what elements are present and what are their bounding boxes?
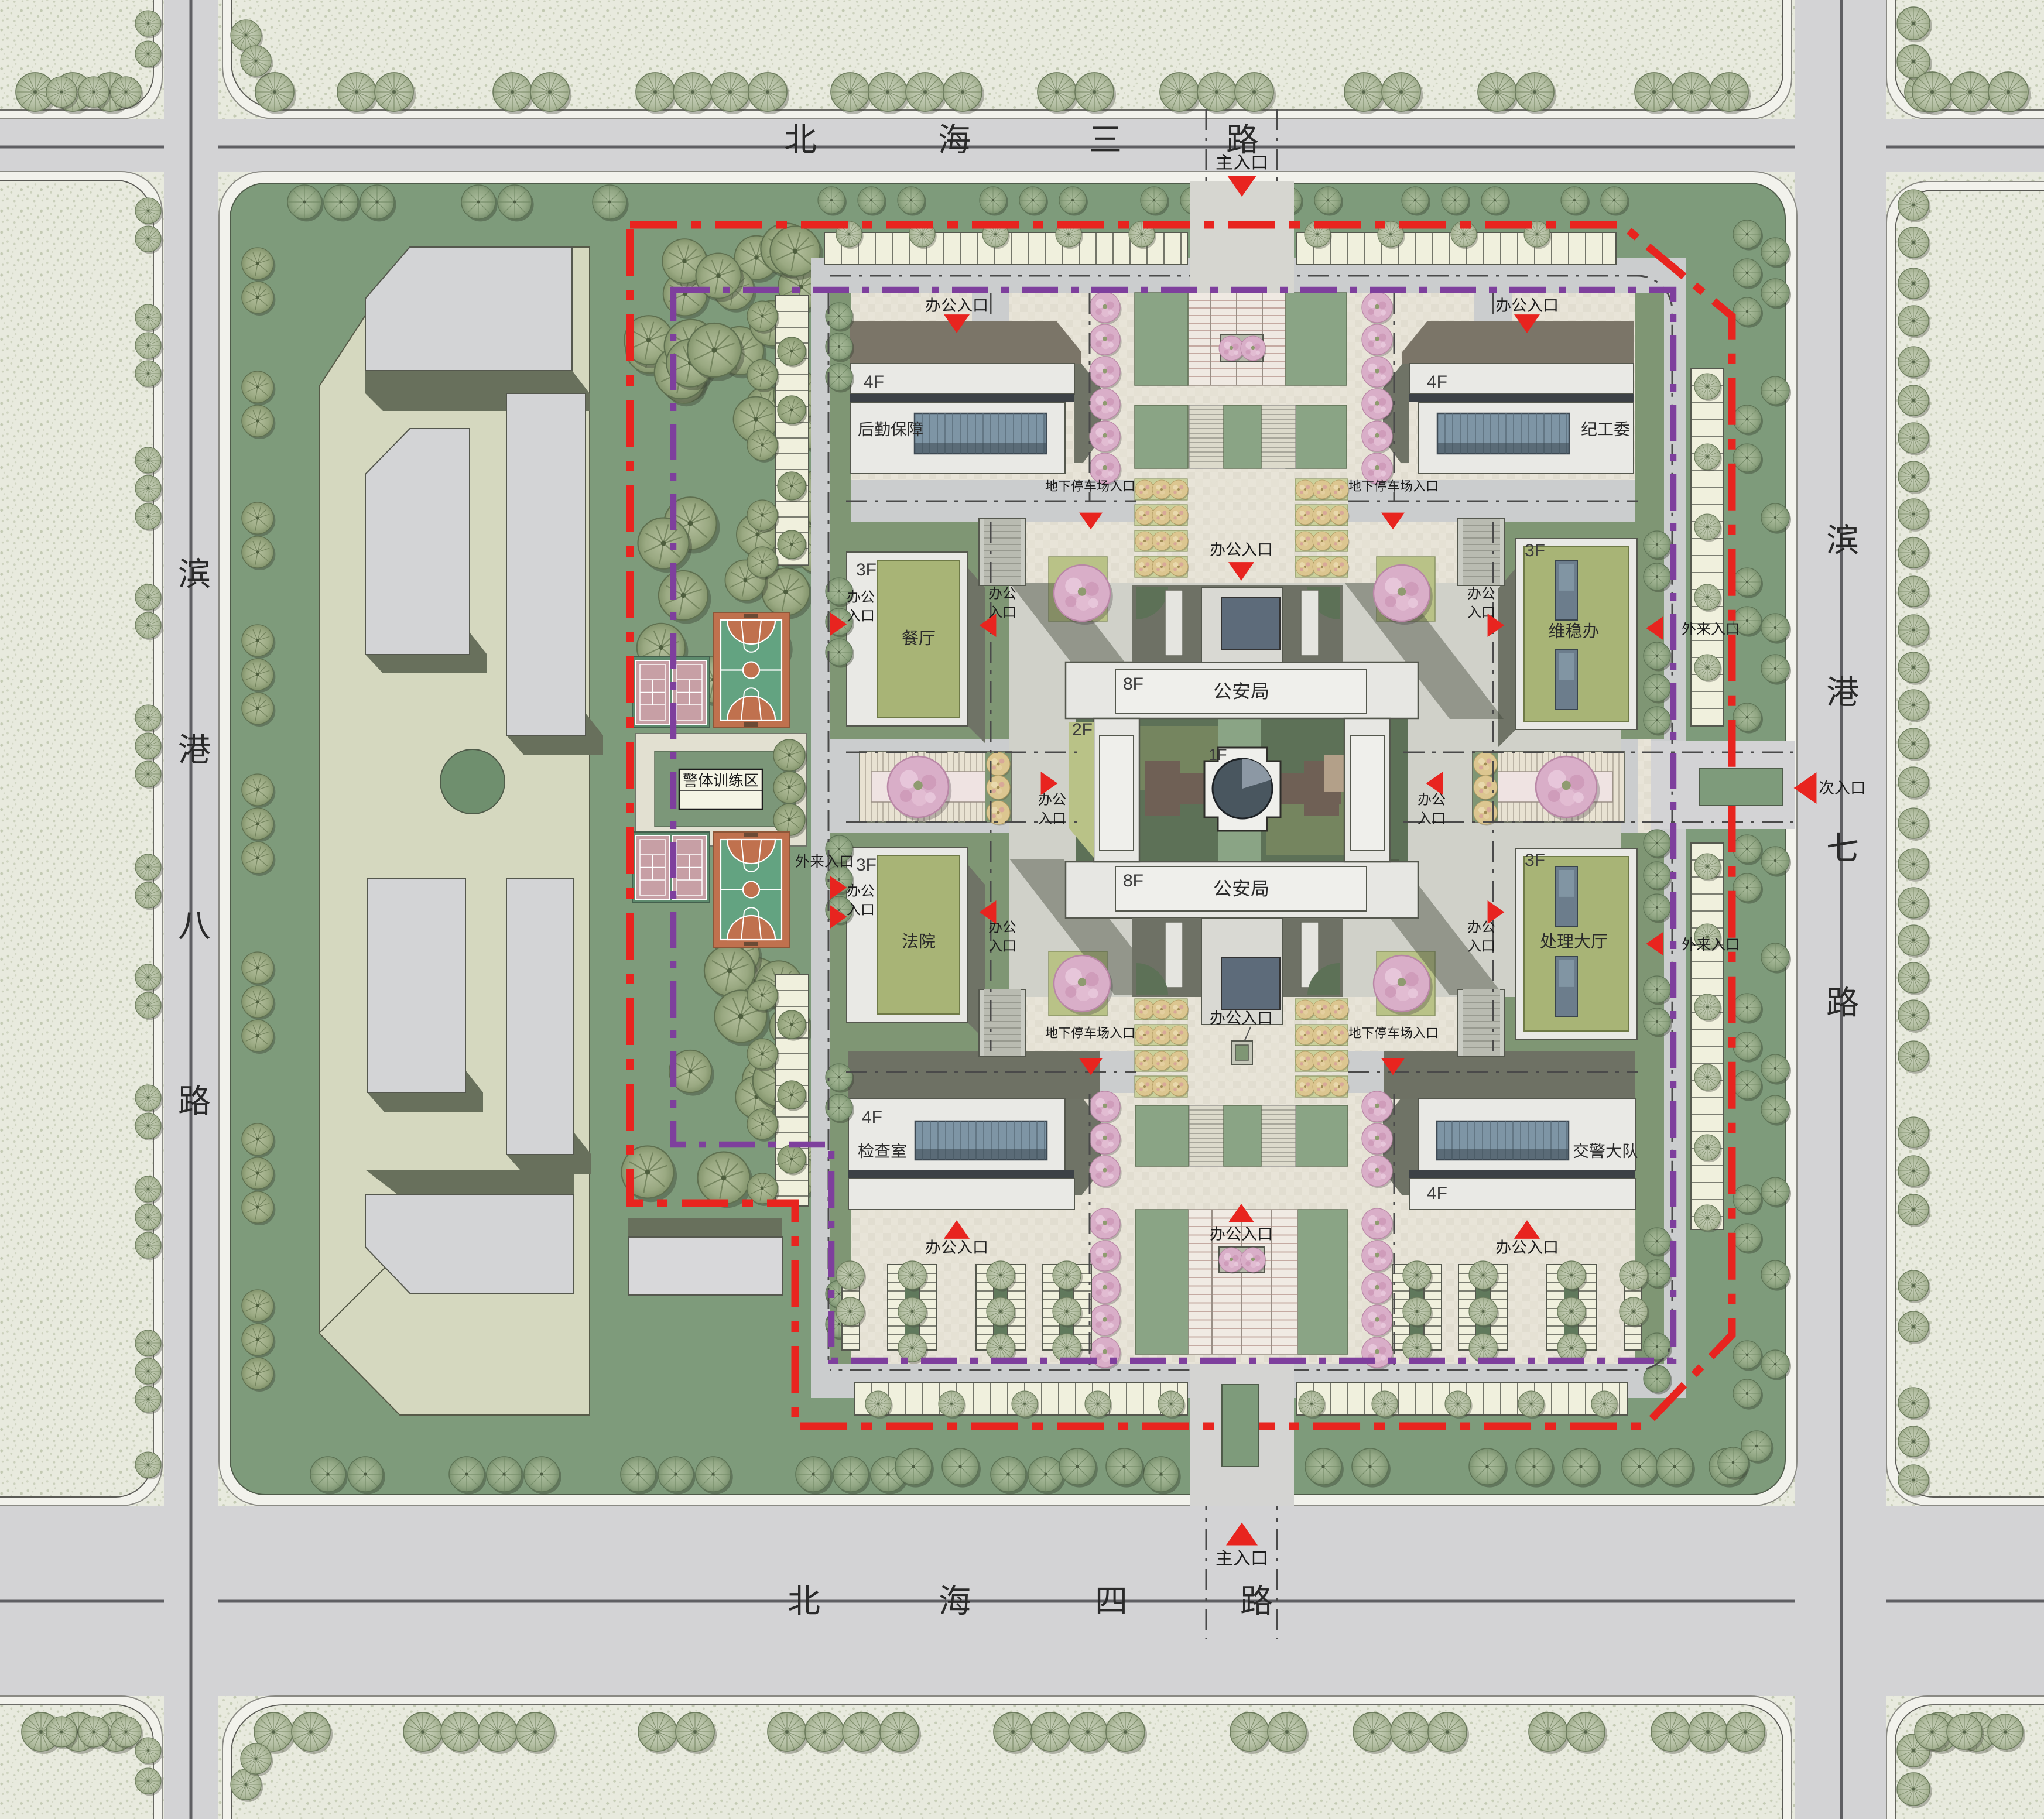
svg-text:2F: 2F <box>1072 720 1093 739</box>
svg-text:3F: 3F <box>1525 851 1545 870</box>
svg-text:1F: 1F <box>1208 746 1227 763</box>
svg-text:3F: 3F <box>856 560 877 580</box>
svg-text:3F: 3F <box>856 855 877 875</box>
svg-text:4F: 4F <box>1427 1184 1447 1203</box>
svg-text:3F: 3F <box>1525 541 1545 560</box>
svg-text:4F: 4F <box>1427 372 1447 392</box>
svg-text:8F: 8F <box>1123 674 1143 694</box>
svg-text:4F: 4F <box>864 372 884 392</box>
svg-text:4F: 4F <box>862 1108 882 1127</box>
svg-text:8F: 8F <box>1123 871 1143 890</box>
